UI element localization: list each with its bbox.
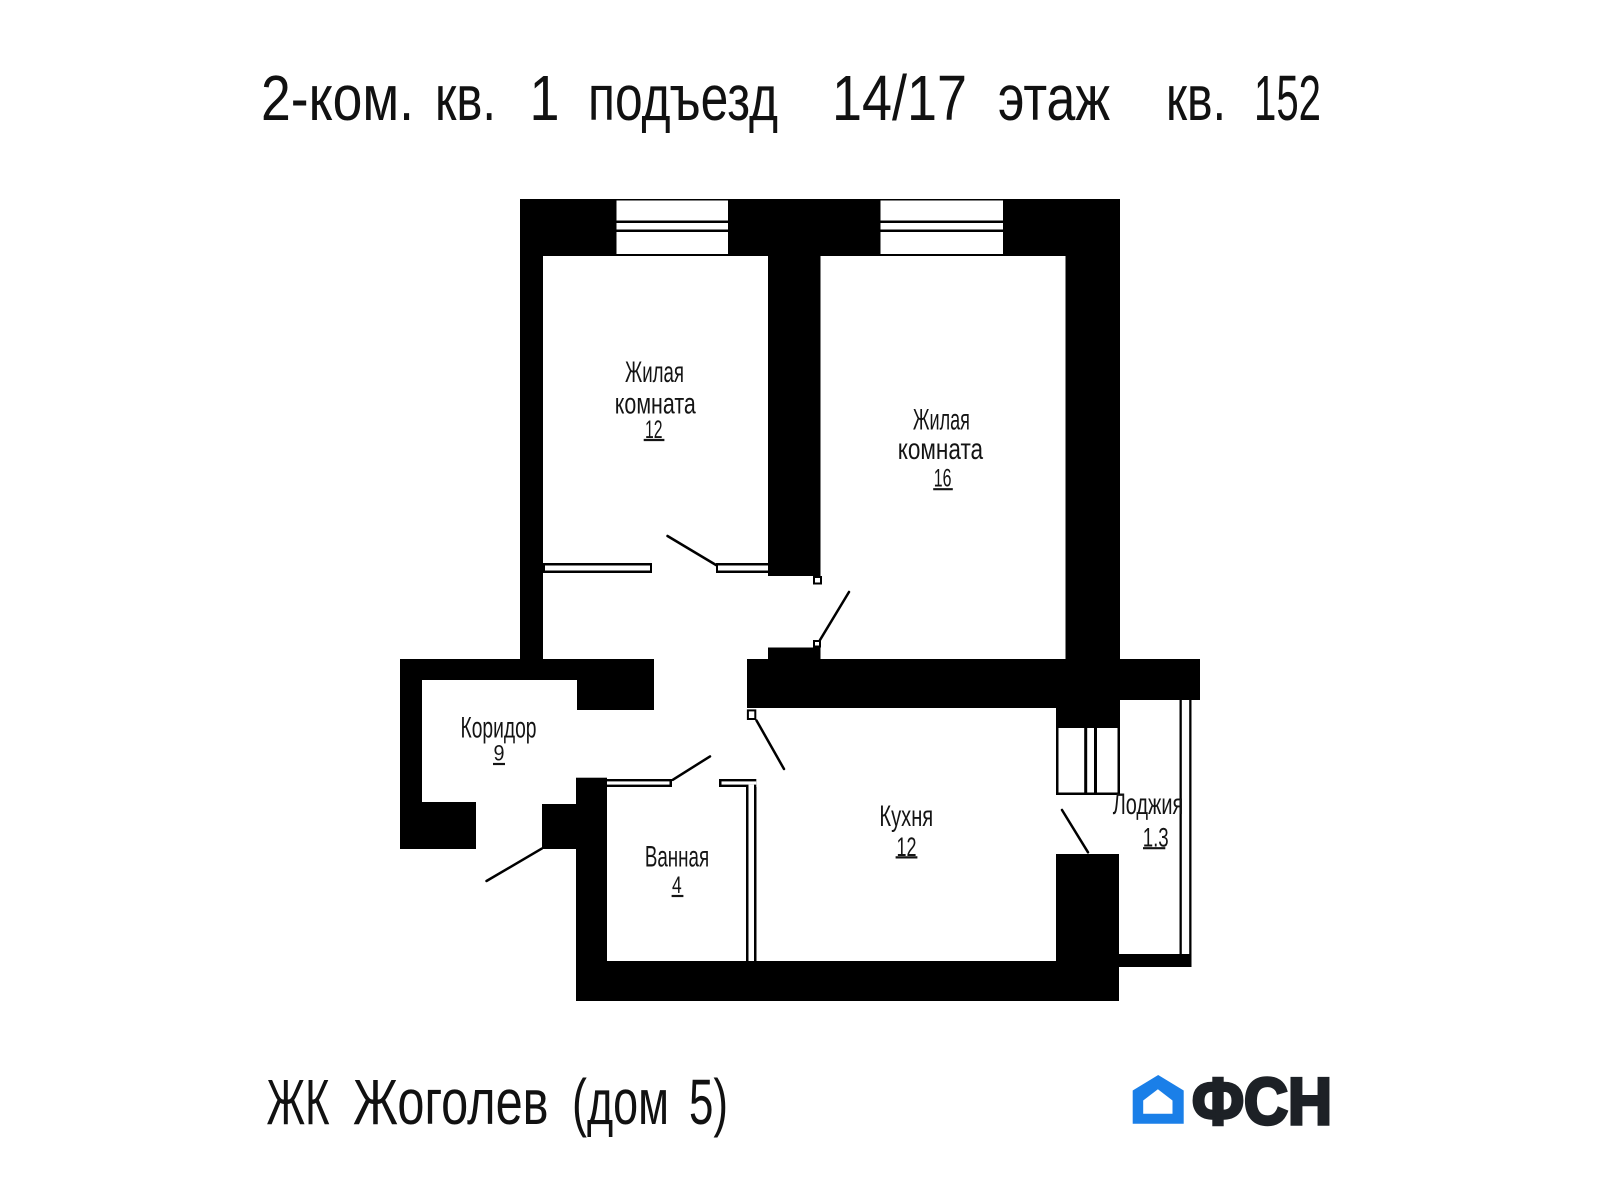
svg-text:5): 5) bbox=[689, 1066, 728, 1138]
svg-text:Жоголев: Жоголев bbox=[353, 1066, 549, 1138]
svg-text:Лоджия: Лоджия bbox=[1113, 788, 1184, 821]
svg-text:ЖК: ЖК bbox=[267, 1066, 330, 1138]
svg-text:Жилая: Жилая bbox=[913, 403, 970, 436]
svg-text:комната: комната bbox=[898, 433, 984, 466]
svg-text:кв.: кв. bbox=[435, 62, 496, 134]
svg-text:подъезд: подъезд bbox=[588, 62, 778, 134]
svg-text:Кухня: Кухня bbox=[879, 800, 933, 833]
svg-text:ФСН: ФСН bbox=[1192, 1064, 1332, 1138]
svg-text:(дом: (дом bbox=[572, 1066, 669, 1138]
svg-text:1: 1 bbox=[530, 62, 560, 134]
svg-text:2-ком.: 2-ком. bbox=[261, 62, 414, 134]
svg-text:14/17: 14/17 bbox=[832, 62, 967, 134]
svg-text:152: 152 bbox=[1254, 62, 1321, 134]
svg-text:Жилая: Жилая bbox=[625, 356, 684, 389]
svg-text:9: 9 bbox=[494, 741, 505, 766]
svg-text:этаж: этаж bbox=[998, 62, 1110, 134]
svg-text:кв.: кв. bbox=[1166, 62, 1226, 134]
svg-text:Ванная: Ванная bbox=[645, 840, 709, 873]
